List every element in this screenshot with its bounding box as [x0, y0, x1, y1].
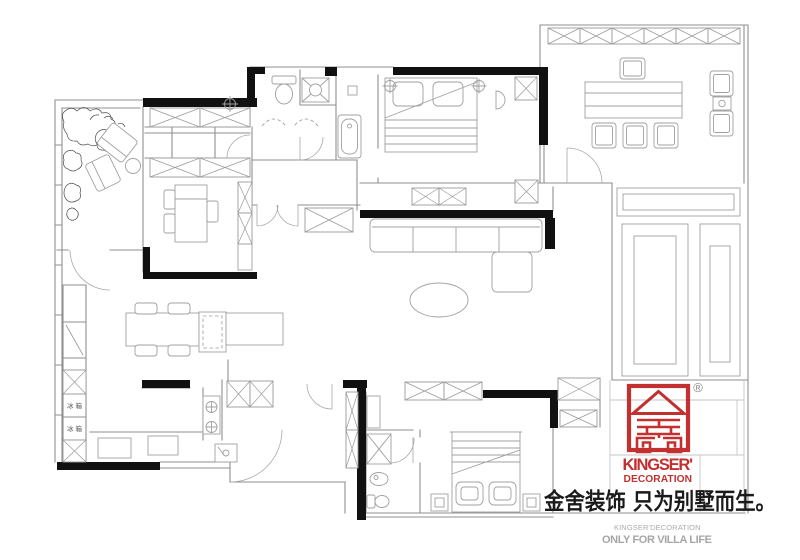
registered-mark: ® — [693, 380, 703, 395]
dining-chair — [623, 123, 647, 148]
nightstand — [431, 494, 448, 511]
vanity-sink — [302, 78, 329, 102]
nightstand — [523, 494, 540, 511]
master-sink — [370, 473, 388, 486]
bed — [385, 78, 477, 152]
fridge-label: 冰箱 — [67, 424, 83, 433]
slogan-sub2: ONLY FOR VILLA LIFE — [602, 534, 714, 546]
dining-chair — [620, 58, 645, 79]
sofa — [370, 219, 542, 292]
rug — [410, 283, 468, 317]
side-table — [126, 159, 141, 174]
shower — [367, 434, 391, 464]
dining-table — [585, 82, 682, 118]
logo-roof — [633, 392, 684, 414]
tall-cabinet-door — [66, 325, 83, 355]
kitchen-sink — [215, 444, 237, 462]
brand-name-line2: DECORATION — [624, 474, 693, 485]
living-room — [370, 219, 542, 317]
floor-plan-drawing: 冰箱 冰箱 — [0, 0, 800, 560]
armchair — [710, 111, 733, 136]
fridge-label: 冰箱 — [67, 401, 83, 410]
dining-chair — [592, 123, 616, 148]
dining-chair — [654, 123, 678, 148]
island-counter — [226, 313, 283, 345]
brand-name: KINGSER' — [623, 456, 694, 474]
base-cabinet — [148, 436, 178, 455]
table — [126, 313, 199, 346]
lounge-chair — [85, 154, 122, 192]
stove — [203, 396, 220, 434]
tea-table — [713, 97, 731, 110]
island-dining — [126, 303, 283, 356]
desk — [164, 185, 218, 242]
laundry-cabinet — [367, 396, 380, 428]
dining-room — [585, 58, 733, 148]
bathtub — [338, 115, 361, 158]
entry-door — [617, 188, 740, 376]
washer-icon — [348, 86, 357, 95]
slogan-cn: 金舍装饰 只为别墅而生。 — [543, 488, 776, 515]
master-suite — [367, 396, 540, 512]
sofa-chaise — [492, 252, 532, 292]
slogan-sub1: KINGSER'DECORATION — [614, 523, 702, 532]
master-toilet — [367, 495, 389, 508]
bedroom-chair — [496, 91, 505, 109]
bathroom-top — [272, 76, 361, 158]
kingser-logo — [629, 386, 688, 452]
master-bed — [450, 432, 522, 512]
base-cabinet — [98, 438, 131, 458]
logo-bricks — [637, 420, 680, 434]
toilet — [272, 76, 296, 104]
bedroom-top — [383, 78, 506, 152]
armchair — [710, 71, 733, 96]
floor-plan-page: 冰箱 冰箱 — [0, 0, 800, 560]
